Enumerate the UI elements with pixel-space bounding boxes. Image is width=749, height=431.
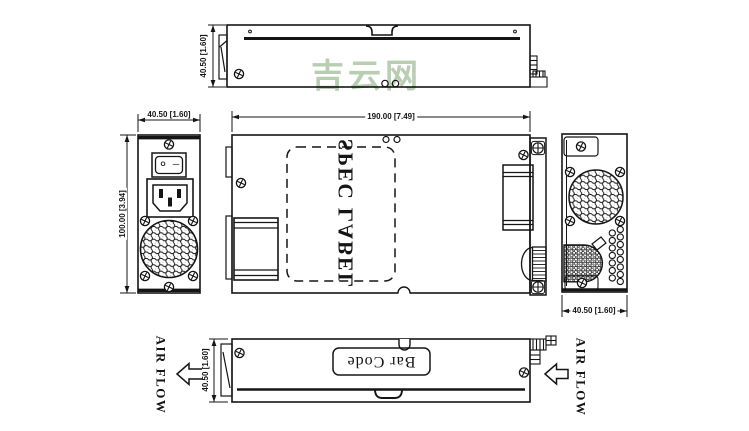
airflow-arrow-left-icon — [177, 364, 203, 385]
dimension-top-depth — [208, 25, 226, 87]
screw-icon — [164, 139, 174, 149]
drawing-canvas: 吉云网 40.50 [1.60] 40.50 [1.60] 100.00 [3.… — [0, 0, 749, 431]
left-tab — [226, 216, 232, 279]
dim-bottom-depth: 40.50 [1.60] — [202, 346, 210, 393]
screw-icon — [565, 167, 575, 177]
dim-rear-width: 40.50 [1.60] — [570, 307, 617, 315]
airflow-arrow-right-icon — [545, 364, 568, 384]
screw-icon — [188, 271, 198, 281]
watermark: 吉云网 — [311, 59, 422, 92]
screw-icon — [188, 216, 198, 226]
screw-icon — [576, 141, 586, 151]
airflow-label-right: AIR FLOW — [575, 338, 588, 417]
flange-screw-icon — [531, 141, 544, 154]
fan-grille-icon — [141, 221, 198, 278]
screw-icon — [615, 216, 625, 226]
screw-icon — [234, 69, 244, 79]
front-view — [120, 114, 200, 293]
screw-icon — [565, 216, 575, 226]
airflow-label-left: AIR FLOW — [155, 336, 168, 415]
spec-label-text: SPEC LABEL — [336, 139, 357, 289]
dim-front-width: 40.50 [1.60] — [145, 111, 192, 119]
side-view-body — [232, 135, 530, 293]
switch-off-mark: O — [160, 162, 165, 169]
screw-icon — [518, 150, 528, 160]
screw-icon — [615, 167, 625, 177]
right-bracket — [530, 336, 556, 364]
rear-view — [562, 134, 627, 317]
screw-icon — [519, 367, 529, 377]
left-tab — [226, 147, 232, 177]
side-view — [226, 111, 546, 295]
dim-side-length: 190.00 [7.49] — [365, 113, 417, 121]
screw-icon — [140, 216, 150, 226]
screw-icon — [577, 278, 587, 288]
flange-screw-icon — [531, 280, 544, 293]
dim-front-height: 100.00 [3.94] — [119, 188, 127, 240]
barcode-label-text: Bar Code — [347, 353, 416, 369]
screw-icon — [234, 348, 244, 358]
dim-top-depth: 40.50 [1.60] — [200, 32, 208, 79]
screw-icon — [140, 271, 150, 281]
switch-on-mark: — — [173, 162, 180, 169]
screw-icon — [236, 178, 246, 188]
screw-icon — [164, 282, 174, 292]
left-bracket — [221, 344, 232, 396]
fan-grille-icon — [569, 170, 623, 224]
left-flange — [219, 35, 227, 79]
right-terminal — [530, 56, 547, 87]
dimension-bottom-depth — [209, 339, 228, 402]
